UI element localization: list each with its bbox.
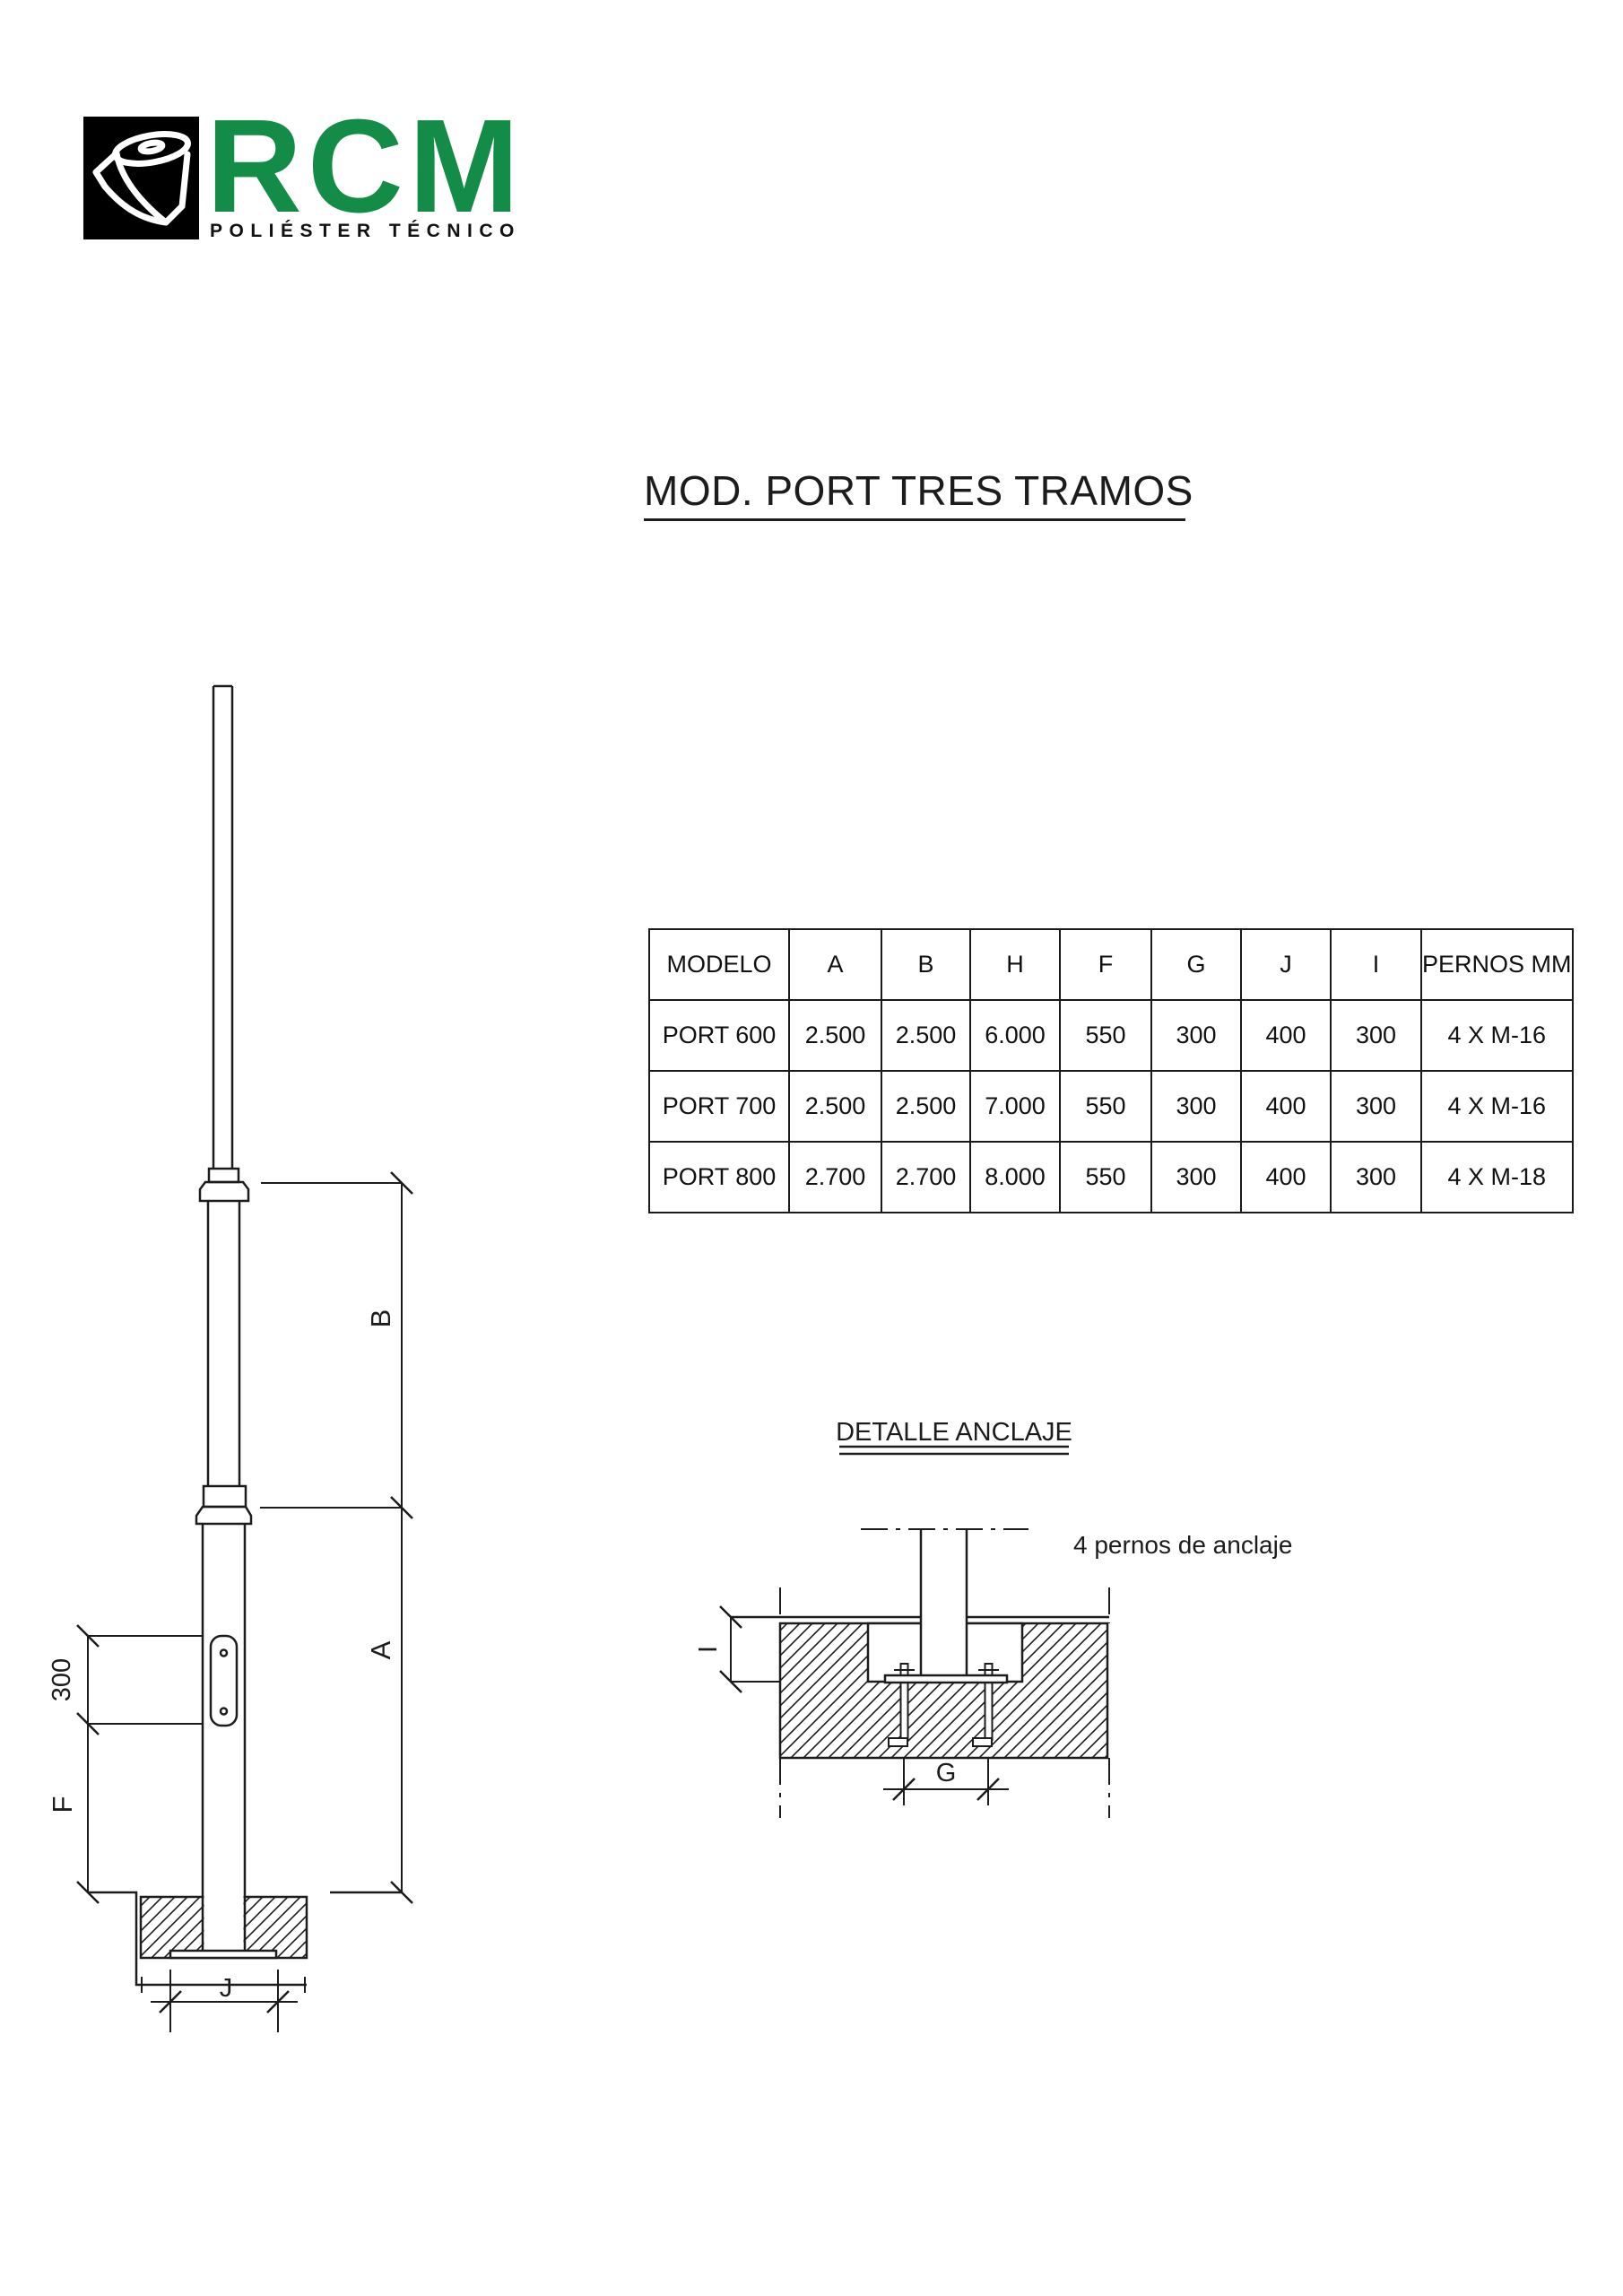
pole-joint2-collar <box>196 1507 251 1524</box>
door-screw-top <box>221 1650 227 1657</box>
pole-top-section <box>213 686 232 1169</box>
pole-elevation-drawing <box>88 686 402 1993</box>
detail-base-plate <box>885 1675 1007 1683</box>
dim-label-b: B <box>365 1309 396 1328</box>
pole-joint2-step <box>204 1486 246 1507</box>
dim-label-i: I <box>694 1646 723 1653</box>
pole-middle-section <box>208 1201 239 1486</box>
dim-label-j: J <box>220 1974 233 2003</box>
dim-label-g: G <box>936 1759 957 1787</box>
anchor-bolt-right-foot <box>973 1738 992 1746</box>
dim-label-300: 300 <box>48 1658 76 1701</box>
detail-title-underline <box>839 1447 1069 1454</box>
anchor-bolt-left-foot <box>889 1738 907 1746</box>
pole-base-plate <box>170 1951 276 1958</box>
foundation-pole-gap <box>204 1895 244 1951</box>
anchor-detail-note: 4 pernos de anclaje <box>1073 1531 1292 1559</box>
pole-bottom-section <box>203 1524 245 1951</box>
dim-label-f: F <box>47 1796 78 1813</box>
technical-drawing-layer: B A 300 F J <box>0 0 1623 2296</box>
anchor-detail-drawing <box>731 1447 1109 1818</box>
datasheet-page: RCM POLIÉSTER TÉCNICO MOD. PORT TRES TRA… <box>0 0 1623 2296</box>
dim-label-a: A <box>365 1640 396 1659</box>
pole-joint1-collar <box>200 1182 248 1201</box>
anchor-detail-title: DETALLE ANCLAJE <box>836 1418 1072 1447</box>
detail-pole-fill <box>922 1531 966 1675</box>
pole-joint1-step <box>209 1169 239 1182</box>
door-screw-bottom <box>221 1709 227 1715</box>
